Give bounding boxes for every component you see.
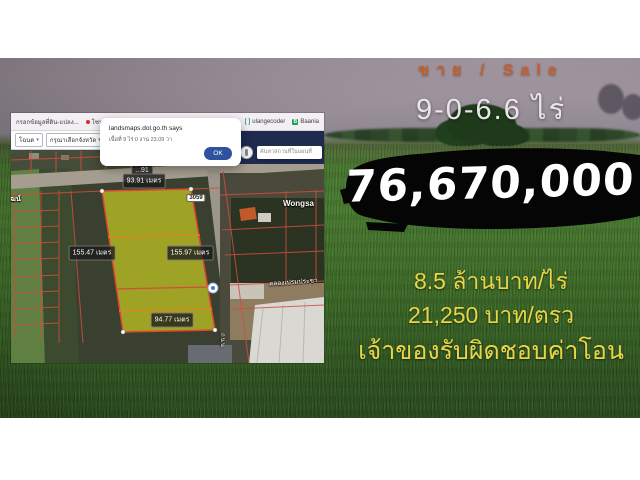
- pegman-icon[interactable]: [240, 146, 253, 159]
- bookmark-label: Baania: [300, 119, 319, 125]
- red-dot-favicon: [86, 120, 90, 124]
- bookmark-label: ulangecoder: [252, 119, 285, 125]
- province-select[interactable]: กรุณาเลือกจังหวัด ▾: [46, 133, 105, 147]
- bookmark-label: กรอกข้อมูลที่ดิน-แปลง...: [16, 117, 79, 127]
- bookmark-item[interactable]: กรอกข้อมูลที่ดิน-แปลง...: [16, 117, 79, 127]
- price-per-rai: 8.5 ล้านบาท/ไร่: [348, 264, 634, 300]
- landsmaps-screenshot: กรอกข้อมูลที่ดิน-แปลง... โซนสีผังเมือง โ…: [11, 113, 324, 363]
- road-label-vertical: ถนน: [217, 333, 227, 348]
- province-value: กรุณาเลือกจังหวัด: [50, 135, 96, 145]
- browser-alert-dialog: landsmaps.dol.go.th says เนื้อที่ 9 ไร่ …: [100, 118, 241, 166]
- route-shield: 3059: [186, 194, 205, 202]
- land-area-label: 9-0-6.6 ไร่: [348, 86, 634, 132]
- bracket-favicon: [ ]: [245, 119, 251, 125]
- measurement-label-right: 155.97 เมตร: [167, 246, 214, 261]
- dialog-title: landsmaps.dol.go.th says: [109, 125, 232, 132]
- place-label-left: วพัฒน์: [11, 194, 21, 205]
- search-type-select[interactable]: โฉนด ▾: [15, 133, 43, 147]
- map-marker[interactable]: [208, 283, 218, 293]
- measurement-label-bottom: 94.77 เมตร: [151, 313, 194, 328]
- ok-button[interactable]: OK: [204, 147, 232, 160]
- baania-favicon: B: [292, 119, 298, 125]
- chevron-down-icon: ▾: [36, 137, 39, 143]
- measurement-label-top: 93.91 เมตร: [123, 174, 166, 189]
- transfer-fee-note: เจ้าของรับผิดชอบค่าโอน: [348, 331, 634, 371]
- place-label-right: Wongsa: [283, 199, 314, 208]
- price-per-sqwah: 21,250 บาท/ตรว: [348, 298, 634, 334]
- measurement-label-left: 155.47 เมตร: [69, 246, 116, 261]
- bookmark-item[interactable]: B Baania: [292, 119, 319, 125]
- sale-label: ขาย / Sale: [348, 58, 634, 83]
- bookmark-item[interactable]: [ ] ulangecoder: [245, 119, 286, 125]
- land-sale-ad: ขาย / Sale 9-0-6.6 ไร่ 76,670,000 8.5 ล้…: [0, 0, 640, 480]
- price-value: 76,670,000: [345, 154, 636, 213]
- map-search-input[interactable]: ค้นหาสถานที่ในแผนที่: [257, 146, 322, 159]
- search-type-value: โฉนด: [19, 135, 34, 145]
- dialog-message: เนื้อที่ 9 ไร่ 0 งาน 23.09 วา: [109, 136, 232, 144]
